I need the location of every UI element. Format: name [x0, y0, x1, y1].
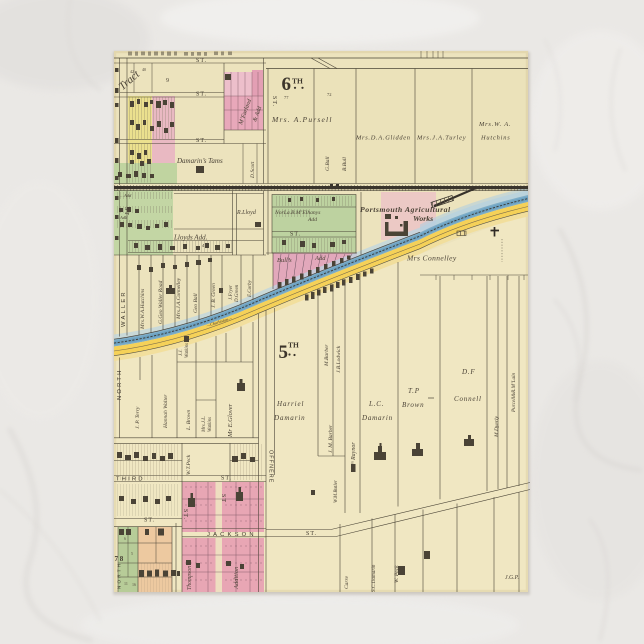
svg-text:L.C.: L.C.	[368, 400, 384, 408]
svg-text:Add: Add	[119, 215, 128, 220]
svg-text:ST.: ST.	[196, 138, 207, 144]
svg-text:J.G.P.: J.G.P.	[505, 575, 519, 581]
svg-text:L. Brown: L. Brown	[186, 409, 192, 431]
svg-text:Mrs.D.A.Glidden: Mrs.D.A.Glidden	[355, 135, 411, 142]
svg-text:W.T.Peck: W.T.Peck	[186, 454, 192, 475]
svg-text:NorLa.B.M’Elhanys: NorLa.B.M’Elhanys	[274, 210, 320, 216]
svg-text:Mrs. A.Pursell: Mrs. A.Pursell	[271, 115, 333, 124]
svg-text:40: 40	[142, 67, 146, 72]
svg-text:Harriel: Harriel	[276, 400, 304, 408]
svg-text:W. Peck: W. Peck	[394, 565, 400, 583]
svg-text:72: 72	[327, 92, 332, 97]
svg-text:JACKSON: JACKSON	[207, 532, 257, 538]
svg-text:G.Ball: G.Ball	[325, 156, 331, 171]
svg-text:77: 77	[284, 95, 289, 100]
svg-text:Wᵐ Raynor: Wᵐ Raynor	[351, 442, 357, 469]
svg-text:Watkins: Watkins	[208, 417, 213, 432]
svg-text:J. M. Barber: J. M. Barber	[328, 424, 334, 453]
svg-text:Watkins: Watkins	[185, 343, 190, 358]
svg-text:Mrs.J.A.Turley: Mrs.J.A.Turley	[416, 135, 466, 142]
svg-text:Add: Add	[307, 217, 317, 223]
svg-text:5: 5	[279, 342, 289, 363]
svg-text:J. B. Green: J. B. Green	[211, 283, 217, 308]
svg-text:Carre: Carre	[344, 576, 350, 589]
svg-text:…Add: …Add	[120, 193, 132, 198]
svg-text:NORTH: NORTH	[117, 368, 123, 400]
svg-text:TH: TH	[292, 77, 303, 86]
svg-text:ST.: ST.	[182, 509, 188, 520]
svg-text:Mrs.W.A.Hutchins: Mrs.W.A.Hutchins	[140, 289, 146, 330]
svg-text:Bull’s: Bull’s	[277, 257, 292, 264]
svg-text:TH: TH	[288, 341, 299, 350]
svg-text:Hutchins: Hutchins	[480, 135, 510, 142]
svg-text:Mrs.J.L.: Mrs.J.L.	[202, 416, 207, 433]
svg-text:B.Bull: B.Bull	[342, 157, 348, 171]
svg-text:11: 11	[124, 581, 128, 586]
svg-text:Thompson’s: Thompson’s	[187, 562, 193, 590]
svg-text:6: 6	[124, 536, 126, 541]
svg-text:ST: ST	[220, 494, 226, 503]
svg-text:ST.: ST.	[196, 92, 207, 98]
svg-text:R.Lloyd: R.Lloyd	[236, 210, 257, 216]
svg-text:Damarin: Damarin	[273, 414, 306, 422]
svg-text:ST.: ST.	[144, 518, 155, 524]
svg-text:Damarin: Damarin	[361, 414, 393, 422]
svg-text:Works: Works	[413, 214, 433, 223]
svg-text:ST.: ST.	[306, 531, 317, 537]
svg-text:WALLER: WALLER	[121, 290, 127, 327]
svg-text:D.Scott: D.Scott	[250, 161, 256, 179]
svg-text:9: 9	[166, 78, 169, 84]
svg-text:NORTH: NORTH	[117, 562, 122, 589]
svg-text:J.Fryer: J.Fryer	[229, 285, 234, 300]
svg-text:J. P. Terry: J. P. Terry	[135, 406, 141, 429]
svg-text:6: 6	[282, 74, 292, 95]
svg-text:Mrs.J.A.Connelley: Mrs.J.A.Connelley	[176, 277, 182, 320]
svg-text:Damarin’s Tams: Damarin’s Tams	[176, 157, 223, 165]
svg-text:Hannah Walter: Hannah Walter	[163, 394, 169, 429]
svg-text:Brown: Brown	[402, 401, 424, 409]
svg-text:W.M.Butler: W.M.Butler	[334, 480, 339, 503]
svg-text:T.P: T.P	[408, 387, 420, 395]
svg-text:M.Barber: M.Barber	[324, 344, 330, 367]
svg-text:OFFNERE: OFFNERE	[268, 450, 274, 483]
svg-text:Mrs Connelley: Mrs Connelley	[406, 254, 457, 263]
svg-text:Portsmouth Agricultural: Portsmouth Agricultural	[360, 205, 451, 214]
svg-text:Lloyds Add.: Lloyds Add.	[173, 234, 208, 242]
svg-text:ST.: ST.	[196, 58, 207, 64]
svg-text:5: 5	[131, 551, 133, 556]
svg-text:Mrs.W. A.: Mrs.W. A.	[478, 121, 511, 128]
svg-text:M.Dyerly: M.Dyerly	[494, 416, 500, 438]
svg-text:16: 16	[132, 582, 136, 587]
svg-text:Addition: Addition	[233, 567, 240, 590]
svg-text:THIRD: THIRD	[116, 477, 145, 483]
svg-text:D.F: D.F	[461, 368, 475, 376]
svg-text:G.Geo Waller Road: G.Geo Waller Road	[158, 280, 164, 324]
svg-text:J.J.: J.J.	[179, 349, 184, 356]
svg-text:S.C.Damarin: S.C.Damarin	[371, 564, 377, 592]
svg-text:ST.: ST.	[271, 96, 277, 107]
svg-text:ST.: ST.	[290, 232, 301, 238]
svg-text:Connell: Connell	[454, 395, 482, 403]
svg-text:J.B.Lodwick: J.B.Lodwick	[336, 345, 342, 373]
svg-text:D.Green: D.Green	[235, 284, 240, 303]
svg-text:Add: Add	[314, 255, 326, 262]
svg-text:Mr E.Glover: Mr E.Glover	[227, 403, 234, 438]
svg-text:ST.: ST.	[221, 476, 232, 482]
svg-text:Purcell&R.M’Lain: Purcell&R.M’Lain	[511, 372, 517, 413]
svg-text:Geo Ball: Geo Ball	[193, 293, 199, 313]
svg-text:E.Corby: E.Corby	[248, 279, 253, 298]
